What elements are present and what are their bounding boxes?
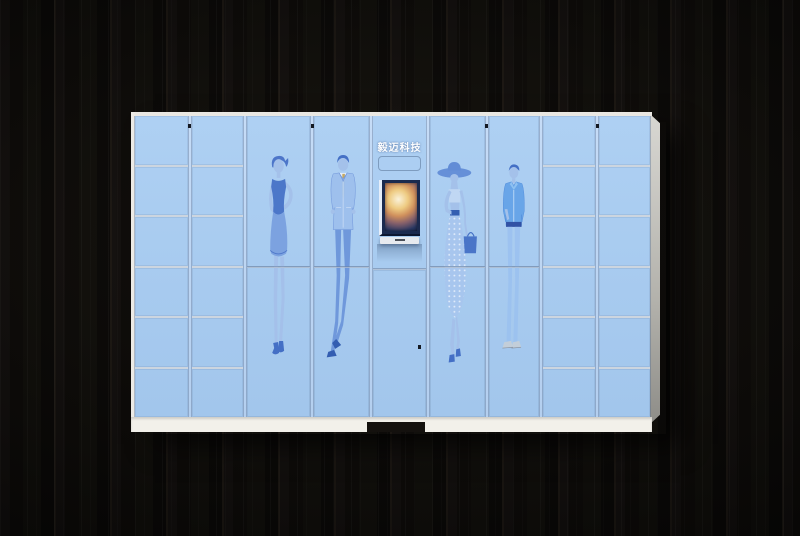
kiosk-screen-unit <box>379 180 420 244</box>
parcel-locker-cabinet: 毅迈科技 <box>131 112 660 430</box>
locker-door-top <box>247 116 311 267</box>
locker-column-small-9 <box>599 116 650 417</box>
keyboard-ledge <box>380 237 419 244</box>
door-divider <box>314 266 369 268</box>
locker-column-small-8 <box>543 116 596 417</box>
locker-cell <box>543 266 596 317</box>
locker-door-bottom <box>247 267 311 418</box>
locker-cell <box>599 215 650 266</box>
kiosk-lower-door <box>373 270 426 417</box>
locker-cell <box>192 316 243 367</box>
lock-icon <box>485 124 488 128</box>
locker-cell <box>543 367 596 418</box>
lock-icon <box>596 124 599 128</box>
locker-cell <box>543 116 596 165</box>
door-divider <box>430 266 485 268</box>
locker-cell <box>135 165 188 216</box>
locker-cell <box>192 215 243 266</box>
brand-label: 毅迈科技 <box>373 139 426 154</box>
locker-column-doors-woman-hat <box>430 116 485 417</box>
locker-cell <box>192 367 243 418</box>
locker-cell <box>135 116 188 165</box>
base-notch <box>367 422 425 432</box>
locker-cell <box>135 367 188 418</box>
locker-door-bottom <box>314 267 369 418</box>
locker-cell <box>135 215 188 266</box>
screen-shadow <box>377 244 422 262</box>
locker-cell <box>135 266 188 317</box>
locker-cell <box>192 266 243 317</box>
cabinet-side-panel <box>650 114 660 424</box>
locker-door-top <box>430 116 485 267</box>
screen-frame <box>379 180 420 236</box>
locker-cell <box>192 116 243 165</box>
kiosk-touchscreen <box>385 183 417 231</box>
locker-door-bottom <box>489 267 539 418</box>
lock-icon <box>418 345 421 349</box>
locker-column-doors-woman-dress <box>247 116 311 417</box>
locker-cell <box>599 266 650 317</box>
locker-cell <box>543 215 596 266</box>
kiosk-column: 毅迈科技 <box>373 116 426 417</box>
locker-cell <box>599 165 650 216</box>
locker-cell <box>599 367 650 418</box>
locker-columns: 毅迈科技 <box>135 116 650 417</box>
lock-icon <box>311 124 314 128</box>
locker-cell <box>543 165 596 216</box>
card-slot <box>395 239 405 241</box>
locker-door-top <box>314 116 369 267</box>
locker-door-bottom <box>430 267 485 418</box>
locker-cell <box>599 116 650 165</box>
door-divider <box>489 266 539 268</box>
locker-cell <box>543 316 596 367</box>
wood-wall-background: 毅迈科技 <box>0 0 800 536</box>
locker-cell <box>192 165 243 216</box>
locker-door-top <box>489 116 539 267</box>
locker-cell <box>135 316 188 367</box>
lock-icon <box>188 124 191 128</box>
locker-column-small-1 <box>135 116 188 417</box>
locker-cell <box>599 316 650 367</box>
locker-column-small-2 <box>192 116 243 417</box>
door-divider <box>247 266 311 268</box>
locker-column-doors-man-suit <box>314 116 369 417</box>
cabinet-base <box>131 417 652 432</box>
locker-column-doors-man-casual <box>489 116 539 417</box>
card-reader-panel <box>378 156 421 171</box>
